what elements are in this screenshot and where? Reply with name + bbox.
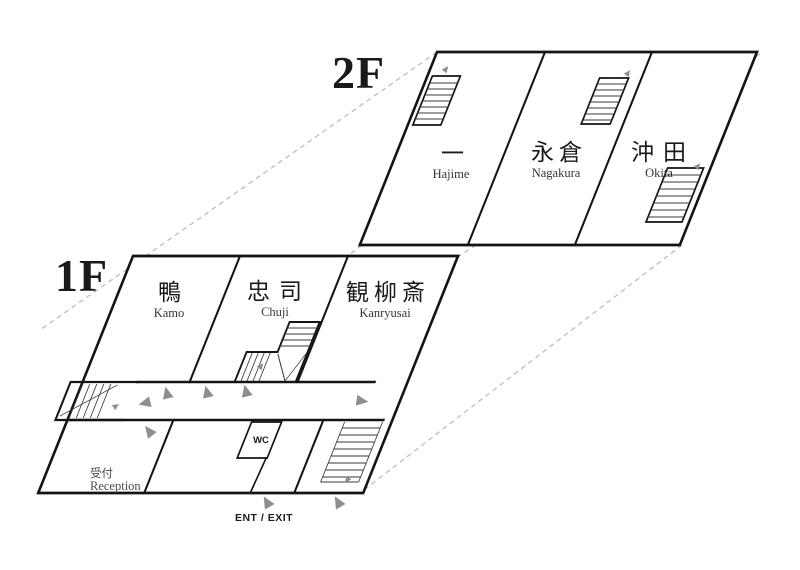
floor-2f-label: 2F	[332, 47, 385, 98]
room-label-romaji: Kanryusai	[359, 306, 411, 320]
entrance-label: ENT / EXIT	[235, 512, 293, 524]
wc-label: WC	[253, 435, 269, 446]
room-label-romaji: Okita	[645, 166, 673, 180]
floor-plan-page: 2F 1F 一 Hajime 永倉 Nagakura 沖田 Okita 鴨 Ka…	[0, 0, 800, 570]
floor-1f-label: 1F	[55, 250, 108, 301]
floor-plan-svg: 2F 1F 一 Hajime 永倉 Nagakura 沖田 Okita 鴨 Ka…	[0, 0, 800, 570]
reception-label-romaji: Reception	[90, 479, 141, 493]
room-label-kanji: 永倉	[531, 140, 587, 165]
entrance-arrow-icon	[330, 494, 346, 510]
entrance-arrow-icon	[259, 494, 275, 510]
room-label-kanji: 一	[441, 141, 469, 166]
room-label-kanji: 観柳斎	[346, 280, 430, 305]
room-label-romaji: Nagakura	[532, 166, 581, 180]
room-label-kanji: 忠司	[247, 279, 311, 304]
room-label-romaji: Chuji	[261, 305, 289, 319]
room-label-kanji: 沖田	[631, 140, 695, 165]
room-label-romaji: Kamo	[154, 306, 185, 320]
room-label-romaji: Hajime	[433, 167, 470, 181]
room-label-kanji: 鴨	[158, 280, 186, 305]
